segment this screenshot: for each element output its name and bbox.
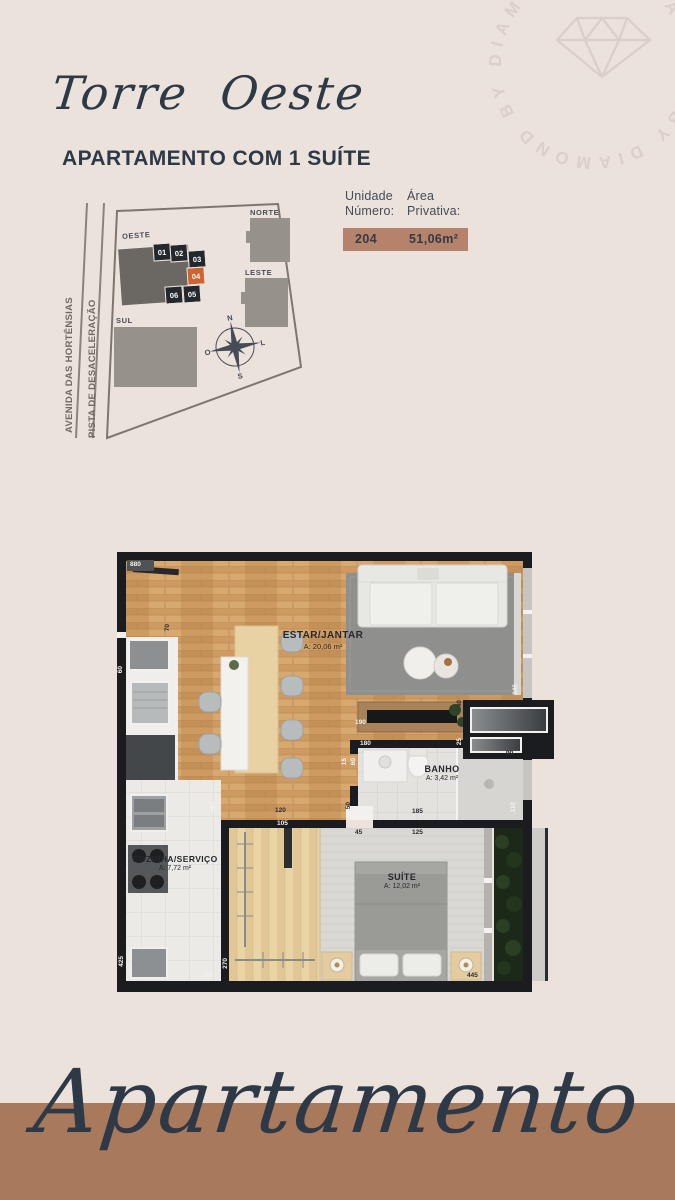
compass-o: O [204,347,211,357]
dim-105: 105 [277,821,288,828]
building-sul [114,327,197,387]
unit-number-label-line1: Unidade [345,189,394,204]
dim-880: 880 [130,562,141,569]
room-label-estar-jantar: ESTAR/JANTAR A: 20,06 m² [263,630,383,651]
room-label-suite: SUÍTE A: 12,02 m² [357,872,447,890]
street-line-outer [76,203,87,438]
private-area-label-line1: Área [407,189,460,204]
sector-label-norte: NORTE [250,208,279,217]
room-area: A: 3,42 m² [397,775,487,782]
building-norte-tab [246,231,251,243]
page-subtitle: APARTAMENTO COM 1 SUÍTE [62,147,371,171]
building-leste-tab [241,292,246,304]
sector-label-leste: LESTE [245,268,272,277]
dim-15: 15 [342,758,349,765]
tv-console [358,702,467,732]
poster-page: BY DIAMOND BY DIAMOND BY DIAMOND Torre O… [0,0,675,1200]
dim-185: 185 [412,809,423,816]
dim-60: 60 [118,666,125,673]
compass-rose-icon: N L S O [203,315,267,379]
compass-l: L [260,338,266,348]
dim-445: 445 [467,973,478,980]
site-plan-graphic [60,195,340,445]
room-area: A: 12,02 m² [357,883,447,890]
room-name: ESTAR/JANTAR [263,630,383,641]
dim-180: 180 [360,741,371,748]
dim-45: 45 [355,830,362,837]
private-area-value: 51,06m² [409,232,458,246]
exterior-ledge [532,828,545,981]
dim-120: 120 [275,808,286,815]
exterior-edge-line [545,828,548,981]
dim-70: 70 [165,624,172,631]
unit-01: 01 [153,243,170,260]
compass-s: S [237,371,244,379]
dim-110: 110 [511,802,518,813]
sofa [358,565,507,627]
unit-06: 06 [165,286,182,303]
dim-245: 245 [513,684,520,695]
building-norte [250,218,290,262]
street-label-pista: PISTA DE DESACELERAÇÃO [87,300,98,438]
dim-190: 190 [355,720,366,727]
dim-270: 270 [223,958,230,969]
unit-info-bar: 204 51,06m² [343,228,468,251]
unit-number-label-line2: Número: [345,204,394,219]
site-plan: AVENIDA DAS HORTÊNSIAS PISTA DE DESACELE… [60,195,340,445]
room-name: COZINHA/SERVIÇO [125,854,225,864]
dim-25: 25 [457,738,464,745]
unit-03: 03 [188,250,205,267]
private-area-label-line2: Privativa: [407,204,460,219]
room-name: BANHO [397,764,487,774]
footer-title: Apartamento [0,1058,675,1146]
dim-60b: 60 [351,758,358,765]
unit-number-label: Unidade Número: [345,189,394,219]
unit-02: 02 [170,244,187,261]
room-label-banho: BANHO A: 3,42 m² [397,764,487,782]
vertical-garden [494,828,523,981]
tower-title: Torre Oeste [50,70,368,116]
compass-n: N [226,315,233,323]
private-area-label: Área Privativa: [407,189,460,219]
unit-05: 05 [183,285,200,302]
diamond-gem-icon [557,18,650,77]
dim-75: 75 [159,729,166,736]
dim-40: 40 [457,700,464,707]
dim-50: 50 [346,802,353,809]
sector-label-sul: SUL [116,316,133,325]
dim-295: 295 [211,802,218,813]
suite-closet [227,825,320,983]
room-area: A: 20,06 m² [263,642,383,651]
floor-plan: ESTAR/JANTAR A: 20,06 m² BANHO A: 3,42 m… [117,552,554,992]
room-area: A: 7,72 m² [125,865,225,872]
floor-plan-graphic [117,552,554,992]
dim-160: 160 [202,973,213,980]
unit-number-value: 204 [355,232,377,246]
diamond-logo-watermark: BY DIAMOND BY DIAMOND BY DIAMOND [468,0,675,190]
street-label-avenida: AVENIDA DAS HORTÊNSIAS [64,293,75,433]
room-label-cozinha-servico: COZINHA/SERVIÇO A: 7,72 m² [125,854,225,872]
room-name: SUÍTE [357,872,447,882]
dim-90: 90 [506,751,513,758]
dim-125: 125 [412,830,423,837]
suite-window [484,828,492,981]
dim-425: 425 [119,956,126,967]
unit-04-highlighted: 04 [187,267,204,284]
